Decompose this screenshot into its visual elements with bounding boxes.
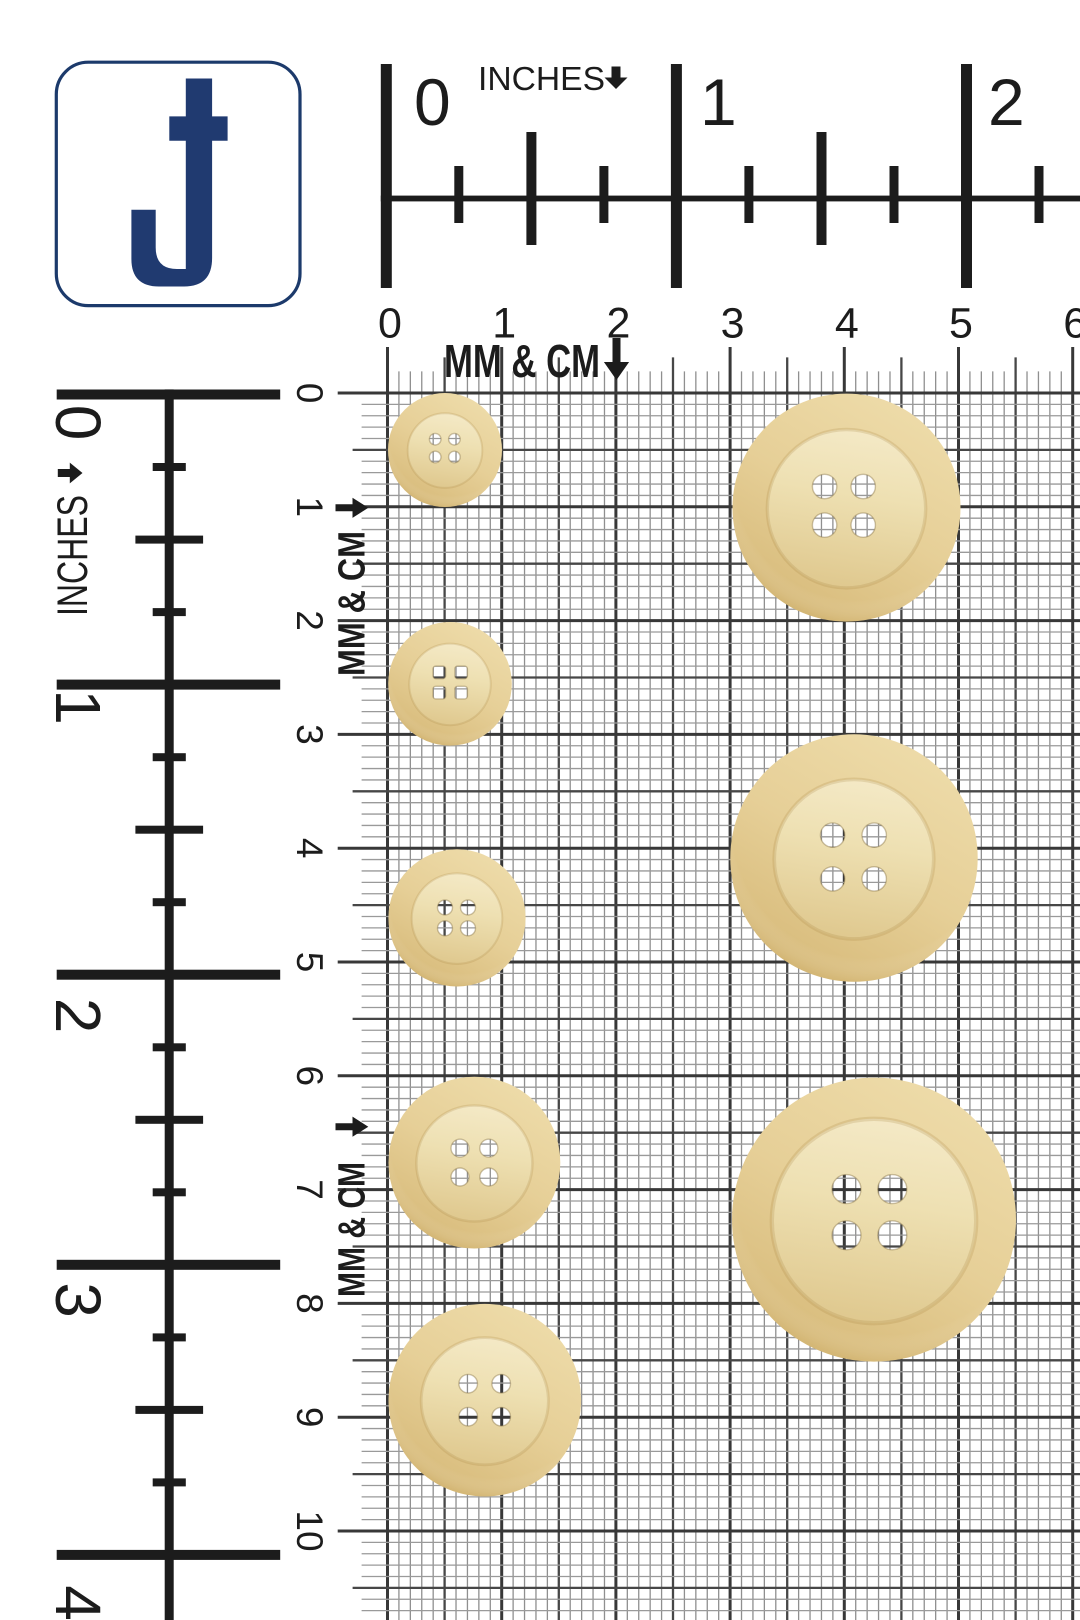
svg-text:MM & CM: MM & CM	[444, 335, 600, 387]
svg-text:10: 10	[289, 1510, 330, 1551]
svg-text:MM & CM: MM & CM	[332, 1162, 374, 1297]
svg-text:2: 2	[42, 998, 114, 1034]
svg-text:6: 6	[1063, 300, 1080, 348]
svg-text:8: 8	[289, 1293, 330, 1314]
svg-text:7: 7	[289, 1179, 330, 1200]
svg-text:INCHES: INCHES	[50, 495, 97, 616]
svg-text:6: 6	[289, 1066, 330, 1087]
svg-text:4: 4	[42, 1585, 114, 1620]
svg-text:1: 1	[700, 65, 737, 139]
svg-text:0: 0	[42, 405, 114, 441]
svg-text:2: 2	[988, 65, 1025, 139]
svg-text:3: 3	[721, 300, 745, 348]
svg-text:3: 3	[42, 1282, 114, 1318]
svg-text:5: 5	[289, 952, 330, 973]
svg-text:4: 4	[289, 838, 330, 859]
svg-text:9: 9	[289, 1407, 330, 1428]
svg-text:5: 5	[949, 300, 973, 348]
svg-text:3: 3	[289, 724, 330, 745]
svg-text:MM & CM: MM & CM	[332, 531, 374, 676]
svg-text:1: 1	[289, 497, 330, 518]
svg-text:INCHES: INCHES	[478, 61, 605, 98]
svg-text:0: 0	[289, 383, 330, 404]
svg-text:4: 4	[835, 300, 859, 348]
svg-text:1: 1	[42, 689, 114, 725]
svg-text:2: 2	[289, 610, 330, 631]
svg-text:0: 0	[414, 65, 451, 139]
svg-text:0: 0	[378, 300, 402, 348]
